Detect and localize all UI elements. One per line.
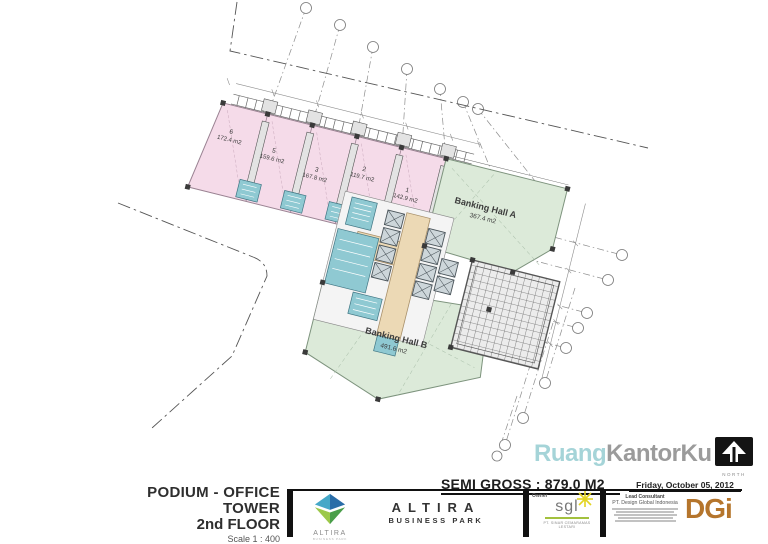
north-label: NORTH xyxy=(714,472,754,477)
consultant-address-line xyxy=(615,520,676,522)
dgi-logo: DGi xyxy=(685,493,732,525)
project-title: PODIUM - OFFICE TOWER xyxy=(86,485,280,517)
consultant-block: Lead Consultant PT. Design Global Indone… xyxy=(605,494,685,523)
consultant-company: PT. Design Global Indonesia xyxy=(605,500,685,506)
consultant-address-line xyxy=(618,517,673,519)
scale-label: Scale 1 : 400 xyxy=(86,535,280,544)
owner-logo-block: sgl PT. SINAR CEMARAMAS LESTARI xyxy=(537,498,597,529)
owner-company: PT. SINAR CEMARAMAS LESTARI xyxy=(537,521,597,529)
altira-logo-subtext: BUSINESS PARK xyxy=(307,537,353,541)
ruangkantorku-logo-part2: KantorKu xyxy=(606,440,711,467)
divider-bar-2 xyxy=(523,491,529,537)
drawing-sheet: 6 172.4 m2 5 159.6 m2 3 167.8 m2 2 119.7… xyxy=(0,0,768,544)
sgl-sun-icon xyxy=(577,491,593,511)
ruangkantorku-logo-part1: Ruang xyxy=(534,440,606,467)
floor-title: 2nd FLOOR xyxy=(86,517,280,533)
consultant-address-line xyxy=(612,508,678,510)
drawing-title: PODIUM - OFFICE TOWER 2nd FLOOR Scale 1 … xyxy=(86,485,280,544)
altira-diamond-icon xyxy=(310,493,350,525)
title-bar: ALTIRA BUSINESS PARK ALTIRA BUSINESS PAR… xyxy=(287,489,742,539)
north-indicator: NORTH xyxy=(714,437,754,477)
consultant-address-line xyxy=(614,514,677,516)
sgl-logo-text: sgl xyxy=(555,499,578,515)
consultant-address-line xyxy=(616,511,674,513)
sgl-underline xyxy=(545,517,589,519)
brand-name-block: ALTIRA BUSINESS PARK xyxy=(361,500,511,525)
brand-name: ALTIRA xyxy=(361,500,511,515)
brand-subtitle: BUSINESS PARK xyxy=(361,516,511,525)
building-plan: 6 172.4 m2 5 159.6 m2 3 167.8 m2 2 119.7… xyxy=(146,75,597,440)
ruangkantorku-logo: RuangKantorKu xyxy=(534,440,712,468)
north-arrow-icon xyxy=(715,437,753,466)
divider-bar-1 xyxy=(287,491,293,537)
altira-logo-text: ALTIRA xyxy=(307,530,353,537)
floor-plan-drawing: 6 172.4 m2 5 159.6 m2 3 167.8 m2 2 119.7… xyxy=(0,0,768,470)
altira-logo: ALTIRA BUSINESS PARK xyxy=(307,493,353,541)
